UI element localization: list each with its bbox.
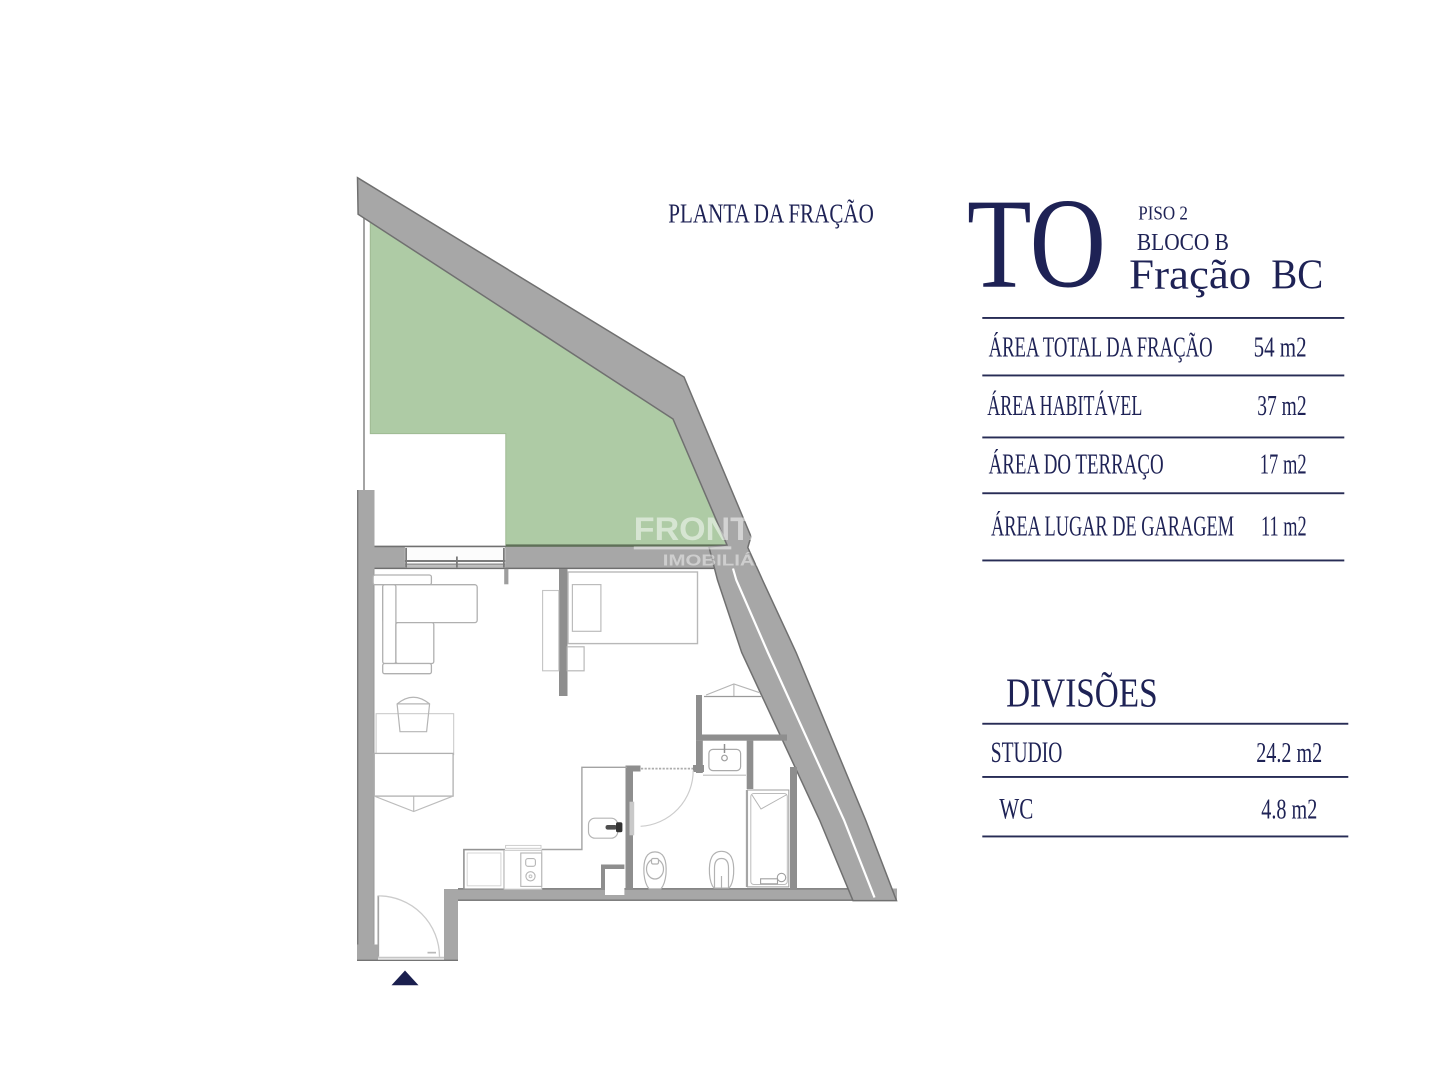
svg-text:STUDIO: STUDIO	[991, 736, 1063, 769]
svg-text:ÁREA TOTAL DA FRAÇÃO: ÁREA TOTAL DA FRAÇÃO	[989, 333, 1213, 364]
svg-text:ÁREA HABITÁVEL: ÁREA HABITÁVEL	[987, 391, 1142, 422]
svg-text:24.2 m2: 24.2 m2	[1256, 738, 1322, 769]
svg-text:PLANTA DA FRAÇÃO: PLANTA DA FRAÇÃO	[668, 199, 874, 229]
svg-text:TO: TO	[967, 173, 1106, 315]
svg-text:FRONTAL: FRONTAL	[634, 511, 794, 547]
svg-text:ÁREA DO TERRAÇO: ÁREA DO TERRAÇO	[989, 450, 1164, 481]
svg-text:BC: BC	[1271, 253, 1323, 299]
svg-text:17 m2: 17 m2	[1260, 450, 1307, 481]
svg-text:PISO 2: PISO 2	[1138, 203, 1188, 224]
svg-text:DIVISÕES: DIVISÕES	[1006, 670, 1158, 716]
svg-text:ÁREA LUGAR DE GARAGEM: ÁREA LUGAR DE GARAGEM	[991, 511, 1234, 542]
svg-text:4.8 m2: 4.8 m2	[1261, 795, 1317, 826]
svg-text:37 m2: 37 m2	[1257, 391, 1306, 422]
svg-text:54 m2: 54 m2	[1254, 333, 1307, 364]
svg-text:IMOBILIÁRIA: IMOBILIÁRIA	[663, 552, 790, 569]
svg-text:11 m2: 11 m2	[1261, 511, 1307, 542]
svg-text:WC: WC	[999, 793, 1033, 826]
svg-text:Fração: Fração	[1129, 253, 1251, 299]
